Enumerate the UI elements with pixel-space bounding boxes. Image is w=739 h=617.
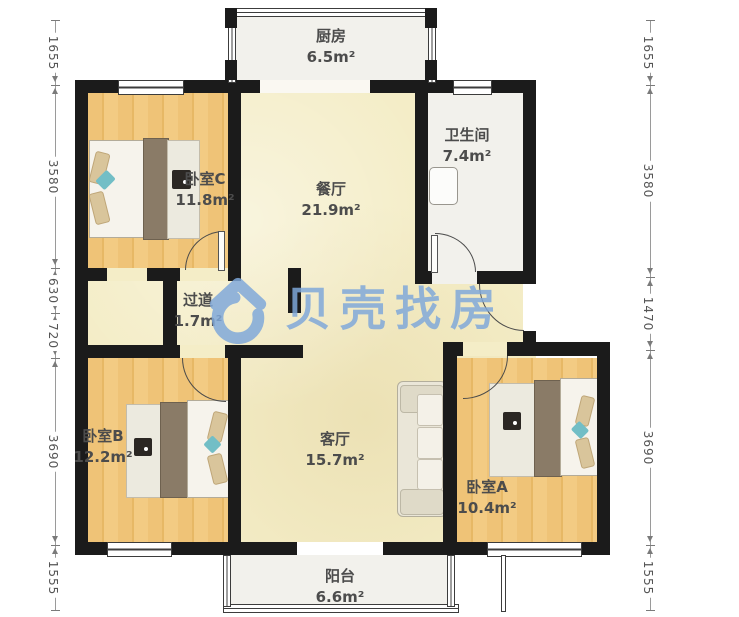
dimension-label: 1470 — [642, 293, 654, 334]
wall-block — [225, 8, 237, 28]
door-leaf — [431, 235, 438, 273]
knob — [513, 421, 517, 425]
room-name: 阳台 — [280, 566, 400, 587]
window — [118, 80, 184, 95]
room-label-balcony: 阳台 6.6m² — [280, 566, 400, 608]
room-name: 厨房 — [271, 26, 391, 47]
dimension-tick — [51, 85, 60, 86]
dimension-tick — [51, 20, 60, 21]
room-area: 15.7m² — [275, 450, 395, 471]
dimension-tick — [646, 20, 655, 21]
room-area: 21.9m² — [271, 200, 391, 221]
washbasin — [429, 167, 458, 205]
window — [107, 542, 172, 557]
sofa-cushion — [417, 427, 443, 459]
wall-segment — [597, 342, 610, 555]
dimension-arrow-down — [647, 341, 653, 347]
door-leaf — [218, 231, 225, 271]
dimension-arrow-down — [647, 268, 653, 274]
dimension-tick — [646, 350, 655, 351]
dimension-arrow-up — [52, 361, 58, 367]
dimension-label: 1655 — [47, 32, 59, 73]
dimension-label: 1655 — [642, 32, 654, 73]
room-label-bedroom-b: 卧室B 12.2m² — [43, 426, 163, 468]
floorplan-canvas: 厨房 6.5m² 卫生间 7.4m² 卧室C 11.8m² 餐厅 21.9m² … — [0, 0, 739, 617]
window — [453, 80, 492, 95]
room-name: 客厅 — [275, 429, 395, 450]
dimension-arrow-up — [647, 88, 653, 94]
dimension-tick — [51, 545, 60, 546]
window — [501, 555, 506, 612]
wall-segment — [415, 93, 428, 284]
window — [447, 555, 455, 607]
wall-block — [225, 60, 237, 80]
dimension-tick — [51, 610, 60, 611]
dimension-arrow-down — [647, 536, 653, 542]
dimension-label: 3580 — [642, 161, 654, 202]
room-area: 6.6m² — [280, 587, 400, 608]
dimension-label: 1555 — [642, 557, 654, 598]
room-area: 7.4m² — [407, 146, 527, 167]
room-area: 12.2m² — [43, 447, 163, 468]
dimension-arrow-down — [52, 536, 58, 542]
dimension-tick — [646, 610, 655, 611]
dimension-arrow-down — [52, 259, 58, 265]
dimension-label: 720 — [47, 320, 59, 352]
dimension-line-left — [55, 20, 56, 610]
room-label-bedroom-c: 卧室C 11.8m² — [145, 169, 265, 211]
dimension-arrow-up — [647, 280, 653, 286]
room-label-bathroom: 卫生间 7.4m² — [407, 125, 527, 167]
room-label-bedroom-a: 卧室A 10.4m² — [427, 477, 547, 519]
room-name: 卧室C — [145, 169, 265, 190]
dimension-tick — [51, 358, 60, 359]
wall-opening — [107, 268, 147, 281]
dimension-arrow-down — [647, 76, 653, 82]
dimension-arrow-up — [647, 353, 653, 359]
tv — [503, 412, 521, 430]
sofa-cushion — [417, 394, 443, 426]
room-name: 餐厅 — [271, 179, 391, 200]
closet — [534, 380, 562, 477]
room-label-kitchen: 厨房 6.5m² — [271, 26, 391, 68]
wall-opening — [297, 542, 383, 555]
room-area: 11.8m² — [145, 190, 265, 211]
room-name: 卧室B — [43, 426, 163, 447]
dimension-arrow-up — [52, 548, 58, 554]
wall-block — [425, 60, 437, 80]
wall-block — [425, 8, 437, 28]
wall-segment — [75, 80, 88, 555]
dimension-label: 3580 — [47, 156, 59, 197]
wall-opening — [523, 284, 536, 331]
room-label-living: 客厅 15.7m² — [275, 429, 395, 471]
dimension-tick — [646, 85, 655, 86]
dimension-label: 630 — [47, 275, 59, 307]
beike-house-logo-icon — [203, 274, 273, 344]
dimension-label: 1555 — [47, 557, 59, 598]
window — [223, 555, 231, 607]
room-area: 6.5m² — [271, 47, 391, 68]
wall-opening — [463, 342, 507, 356]
dimension-tick — [51, 313, 60, 314]
dimension-arrow-up — [647, 548, 653, 554]
room-label-dining: 餐厅 21.9m² — [271, 179, 391, 221]
dimension-tick — [646, 545, 655, 546]
room-name: 卫生间 — [407, 125, 527, 146]
room-name: 卧室A — [427, 477, 547, 498]
dimension-label: 3690 — [642, 427, 654, 468]
dimension-tick — [51, 268, 60, 269]
window — [228, 8, 436, 17]
dimension-arrow-up — [52, 88, 58, 94]
wardrobe — [489, 383, 536, 477]
watermark-brand-text: 贝壳找房 — [285, 286, 505, 332]
wall-opening — [180, 345, 225, 358]
room-area: 10.4m² — [427, 498, 547, 519]
watermark: 贝壳找房 — [203, 274, 505, 344]
closet — [160, 402, 189, 498]
wall-segment — [228, 345, 241, 555]
wall-opening — [260, 80, 370, 93]
dimension-arrow-down — [52, 76, 58, 82]
dimension-tick — [646, 277, 655, 278]
